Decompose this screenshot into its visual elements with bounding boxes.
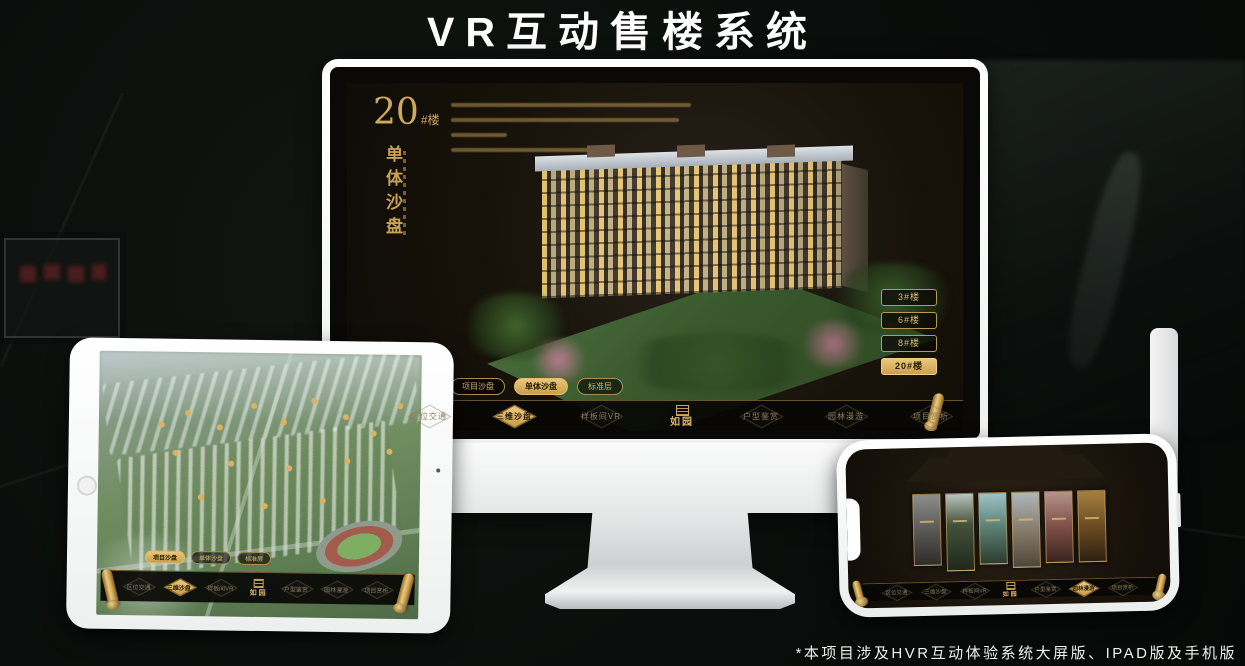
sub-tab-single[interactable]: 单体沙盘 — [514, 378, 568, 395]
tablet-sub-tab-floorplate[interactable]: 标准层 — [237, 552, 271, 565]
background-aerial-photo — [975, 60, 1245, 440]
sub-tab-group: 项目沙盘 单体沙盘 标准层 — [451, 378, 623, 395]
model-building-facade — [542, 158, 842, 298]
nav-item-3d-sandtable[interactable]: 三维沙盘 — [496, 411, 532, 422]
phone-scroll-left[interactable] — [854, 580, 863, 604]
tablet-scroll-right[interactable] — [399, 573, 411, 611]
seal-icon — [1006, 581, 1015, 589]
gallery-panels — [912, 490, 1107, 572]
floor-button-group: 3#楼 6#楼 8#楼 20#楼 — [881, 289, 937, 375]
phone-device: 区位交通 三维沙盘 样板间VR 如园 户型鉴赏 园林漫游 项目赏析 — [836, 433, 1180, 618]
phone-brand-logo[interactable]: 如园 — [1002, 581, 1018, 597]
block-number: 20 — [373, 92, 419, 133]
tablet-sub-tab-project[interactable]: 项目沙盘 — [145, 550, 185, 564]
tablet-bottom-nav: 区位交通 三维沙盘 样板间VR 如园 户型鉴赏 园林漫游 项目赏析 — [100, 570, 414, 605]
phone-nav-item-floorplans[interactable]: 户型鉴赏 — [1034, 584, 1056, 593]
gallery-panel[interactable] — [1044, 491, 1074, 564]
gallery-panel[interactable] — [1077, 490, 1107, 563]
banner: VR互动售楼系统 — [0, 0, 1245, 56]
scroll-icon — [1154, 573, 1167, 598]
phone-nav-item-garden-tour[interactable]: 园林漫游 — [1073, 583, 1095, 592]
background-river — [1059, 148, 1151, 371]
phone-notch — [846, 498, 860, 560]
gallery-panel[interactable] — [912, 494, 942, 567]
footnote: *本项目涉及HVR互动体验系统大屏版、IPAD版及手机版 — [796, 642, 1237, 663]
seal-icon — [676, 405, 689, 416]
section-title-vertical: 单体沙盘 — [380, 145, 405, 241]
tablet-nav-item-project-gallery[interactable]: 项目赏析 — [364, 585, 388, 594]
background-road-line — [0, 92, 124, 367]
home-button — [77, 475, 97, 495]
tablet-nav-item-floorplans[interactable]: 户型鉴赏 — [284, 584, 308, 593]
brand-logo[interactable]: 如园 — [670, 405, 694, 428]
block-number-suffix: #楼 — [421, 113, 440, 127]
phone-nav-item-location[interactable]: 区位交通 — [885, 588, 907, 597]
tablet-nav-item-showroom-vr[interactable]: 样板间VR — [207, 583, 233, 592]
gallery-pergola-silhouette — [905, 444, 1106, 483]
model-trees — [617, 333, 817, 393]
nav-item-showroom-vr[interactable]: 样板间VR — [581, 411, 621, 422]
gallery-panel[interactable] — [945, 493, 975, 572]
tablet-sub-tab-group: 项目沙盘 单体沙盘 标准层 — [145, 550, 271, 565]
tablet-screen: 项目沙盘 单体沙盘 标准层 区位交通 三维沙盘 样板间VR 如园 户型鉴赏 园林… — [96, 351, 422, 619]
gallery-panel[interactable] — [1011, 491, 1041, 568]
seal-icon — [254, 579, 264, 588]
block-title: 20#楼 — [373, 95, 440, 131]
nav-item-location[interactable]: 区位交通 — [411, 411, 447, 422]
page-title: VR互动售楼系统 — [427, 0, 818, 58]
tablet-nav-item-location[interactable]: 区位交通 — [127, 582, 151, 591]
floor-button-6[interactable]: 6#楼 — [881, 312, 937, 329]
floor-button-20[interactable]: 20#楼 — [881, 358, 937, 375]
model-roof-gable — [677, 145, 705, 158]
nav-item-garden-tour[interactable]: 园林漫游 — [828, 411, 864, 422]
sub-tab-project[interactable]: 项目沙盘 — [451, 378, 505, 395]
phone-nav-item-3d-sandtable[interactable]: 三维沙盘 — [924, 587, 946, 596]
monitor-stand — [545, 511, 795, 609]
section-title-caption — [403, 149, 406, 235]
phone-screen: 区位交通 三维沙盘 样板间VR 如园 户型鉴赏 园林漫游 项目赏析 — [845, 442, 1171, 608]
phone-nav-item-showroom-vr[interactable]: 样板间VR — [963, 586, 987, 595]
tablet-nav-item-garden-tour[interactable]: 园林漫游 — [324, 584, 348, 593]
background-plaque — [4, 238, 120, 338]
phone-nav-item-project-gallery[interactable]: 项目赏析 — [1111, 583, 1133, 592]
model-blossoms — [527, 339, 591, 381]
tablet-brand-logo[interactable]: 如园 — [250, 579, 268, 597]
floor-button-8[interactable]: 8#楼 — [881, 335, 937, 352]
tablet-sub-tab-single[interactable]: 单体沙盘 — [191, 551, 231, 565]
poster: VR互动售楼系统 20#楼 单体沙盘 — [0, 0, 1245, 666]
phone-scroll-right[interactable] — [1156, 573, 1165, 597]
tablet-nav-item-3d-sandtable[interactable]: 三维沙盘 — [167, 582, 191, 591]
tablet-device: 项目沙盘 单体沙盘 标准层 区位交通 三维沙盘 样板间VR 如园 户型鉴赏 园林… — [66, 337, 454, 633]
tablet-scroll-left[interactable] — [104, 569, 116, 607]
sub-tab-floorplate[interactable]: 标准层 — [577, 378, 623, 395]
building-number-markers[interactable] — [159, 422, 165, 428]
model-roof-gable — [767, 145, 795, 158]
phone-side-button — [1176, 493, 1181, 527]
model-roof-gable — [587, 145, 615, 158]
gallery-panel[interactable] — [978, 492, 1008, 565]
nav-item-floorplans[interactable]: 户型鉴赏 — [743, 411, 779, 422]
phone-bottom-nav: 区位交通 三维沙盘 样板间VR 如园 户型鉴赏 园林漫游 项目赏析 — [862, 577, 1156, 602]
floor-button-3[interactable]: 3#楼 — [881, 289, 937, 306]
nav-item-project-gallery[interactable]: 项目赏析 — [913, 411, 949, 422]
model-blossoms — [797, 321, 869, 367]
camera-dot — [436, 468, 440, 472]
